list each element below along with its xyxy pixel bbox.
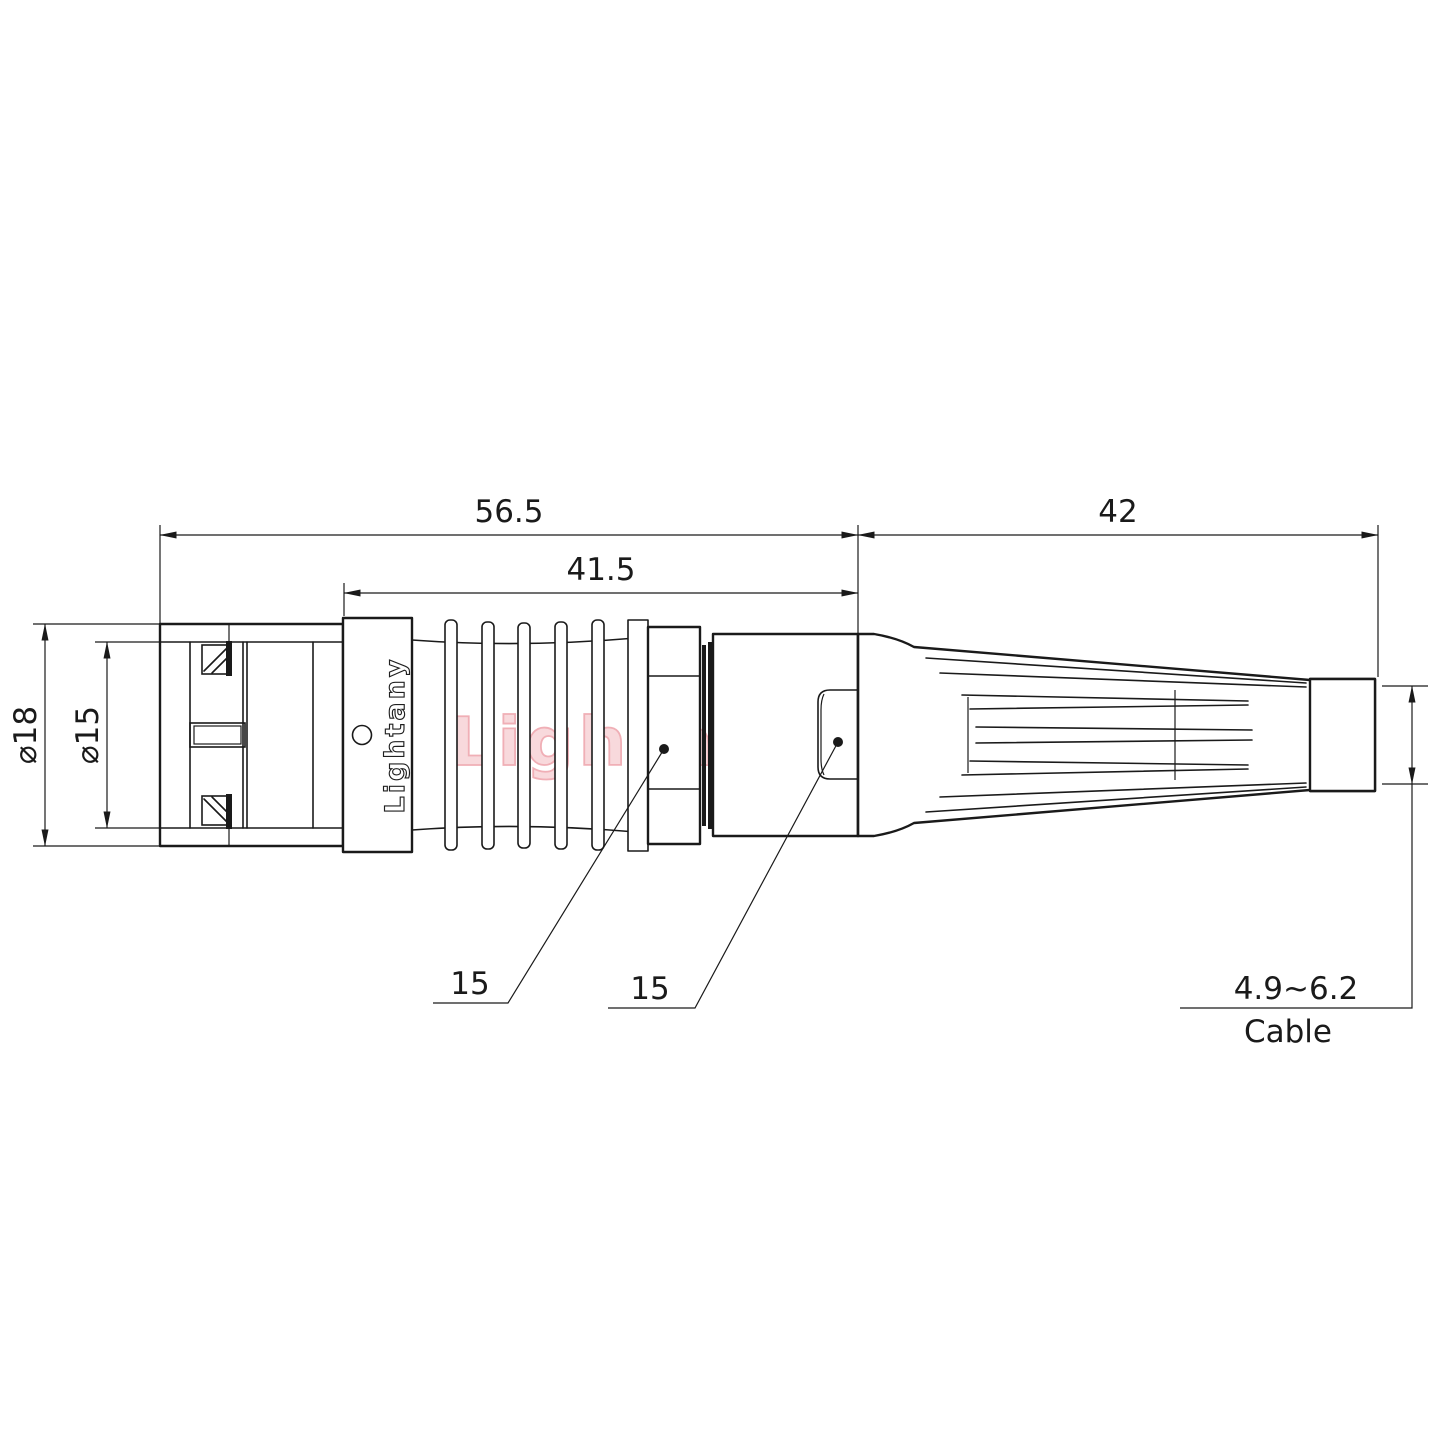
dimension-label-outer-diameter: ⌀18 bbox=[8, 706, 44, 764]
latch-mechanism-top bbox=[202, 624, 232, 676]
connector-front-shell bbox=[160, 624, 343, 846]
strain-relief-boot bbox=[858, 634, 1375, 836]
dimension-body-length: 41.5 bbox=[344, 552, 858, 616]
leader-label-right: 15 bbox=[630, 971, 669, 1007]
rear-body-outline bbox=[713, 634, 858, 836]
coupling-ring bbox=[648, 627, 710, 844]
front-shell-outline bbox=[160, 624, 343, 846]
grip-block: Lightany bbox=[343, 618, 412, 852]
leader-dot bbox=[833, 737, 843, 747]
leader-dot bbox=[659, 744, 669, 754]
brand-engraving-text: Lightany bbox=[380, 657, 411, 814]
latch-mechanism-bottom bbox=[202, 794, 232, 846]
cable-label: Cable bbox=[1244, 1014, 1332, 1050]
bellows-rib bbox=[555, 622, 567, 849]
bellows-rib bbox=[482, 622, 494, 849]
connector-technical-drawing: Lightany bbox=[0, 0, 1440, 1440]
bellows-rib bbox=[445, 620, 457, 850]
dimension-label-total-length: 56.5 bbox=[474, 494, 543, 530]
front-shell-slot bbox=[190, 723, 245, 747]
boot-outline bbox=[858, 634, 1375, 836]
boot-tip bbox=[1310, 679, 1375, 791]
leader-label-left: 15 bbox=[450, 966, 489, 1002]
dimension-label-boot-length: 42 bbox=[1098, 494, 1137, 530]
dimension-total-length: 56.5 bbox=[160, 494, 858, 634]
dimension-label-inner-diameter: ⌀15 bbox=[70, 706, 106, 764]
dimension-inner-diameter: ⌀15 bbox=[70, 642, 160, 828]
coupling-ring-outline bbox=[648, 627, 700, 844]
cable-range-label: 4.9~6.2 bbox=[1234, 971, 1359, 1007]
rear-body bbox=[713, 634, 858, 836]
bellows-rib bbox=[518, 623, 530, 848]
connector-datasheet-page: Lightany bbox=[0, 0, 1440, 1440]
dimension-label-body-length: 41.5 bbox=[566, 552, 635, 588]
bellows-rib bbox=[592, 620, 604, 850]
bellows-end-band bbox=[628, 620, 648, 851]
